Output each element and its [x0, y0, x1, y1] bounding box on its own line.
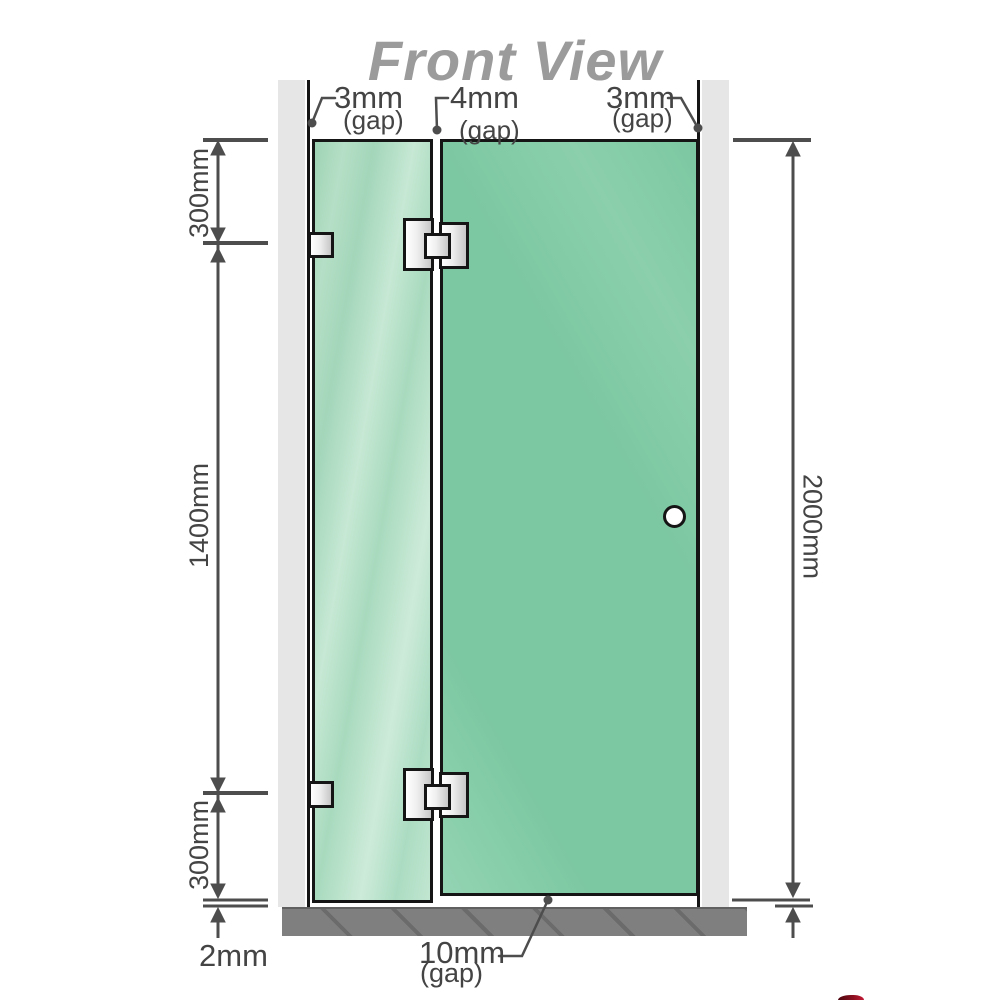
- door-handle-knob: [663, 505, 686, 528]
- arrow-up-icon: [211, 248, 225, 262]
- logo-fragment: [838, 995, 864, 1000]
- wall-post-right: [702, 80, 729, 907]
- leader-dot-icon: [433, 126, 442, 135]
- wall-bracket-bottom: [308, 781, 334, 808]
- dim-label-left-middle: 1400mm: [182, 458, 216, 574]
- wall-post-left: [278, 80, 305, 907]
- shower-screen-front-view-diagram: Front View: [0, 0, 1000, 1000]
- gap-label-left-unit: (gap): [343, 107, 404, 133]
- floor-base: [282, 907, 747, 936]
- dim-label-right-height: 2000mm: [795, 463, 829, 591]
- arrow-down-icon: [786, 883, 800, 897]
- leader-gap-middle: [436, 98, 448, 130]
- dim-label-left-top: 300mm: [182, 142, 216, 244]
- hinge-bottom-knuckle: [424, 784, 451, 810]
- arrow-up-icon: [211, 908, 225, 922]
- leader-dot-icon: [544, 896, 553, 905]
- gap-label-middle-value: 4mm: [450, 82, 519, 113]
- wall-bracket-top: [308, 232, 334, 258]
- bottom-gap-label-unit: (gap): [420, 960, 483, 987]
- hinge-top-knuckle: [424, 233, 451, 259]
- glass-panel-door: [440, 139, 699, 896]
- gap-label-right-unit: (gap): [612, 105, 673, 131]
- floor-gap-label: 2mm: [199, 940, 268, 971]
- arrow-up-icon: [786, 142, 800, 156]
- arrow-up-icon: [786, 908, 800, 922]
- dim-label-left-bottom: 300mm: [182, 789, 216, 901]
- gap-label-middle-unit: (gap): [459, 117, 520, 143]
- leader-gap-left: [312, 98, 335, 123]
